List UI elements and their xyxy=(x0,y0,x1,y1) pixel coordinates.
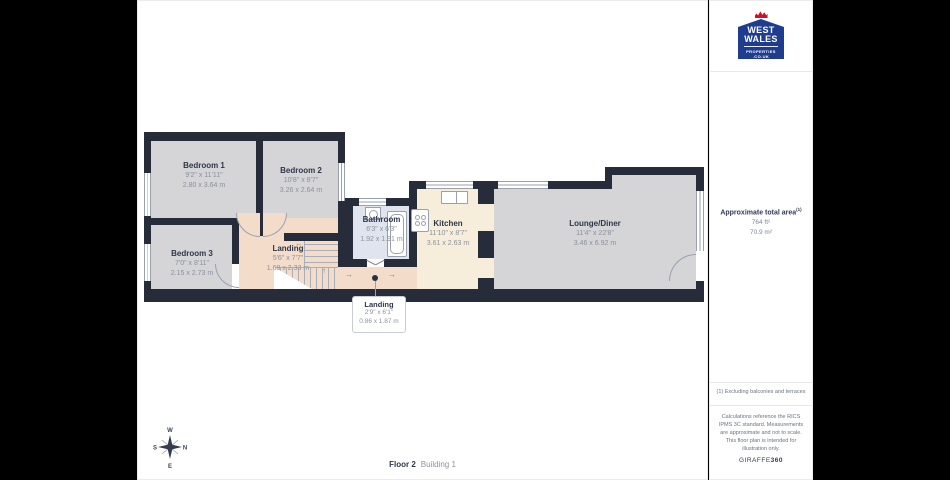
room-name: Lounge/Diner xyxy=(509,219,681,229)
kitchen-counter-icon xyxy=(441,191,468,204)
giraffe360-brand: GIRAFFE360 xyxy=(710,457,812,464)
room-floor-lounge-upper xyxy=(612,175,696,189)
window xyxy=(144,244,151,281)
bathroom-door-mark xyxy=(367,259,384,267)
room-label-bathroom: Bathroom 6'3" x 6'3" 1.92 x 1.91 m xyxy=(353,215,410,244)
room-dim-imperial: 10'8" x 8'7" xyxy=(263,176,339,186)
svg-text:S: S xyxy=(153,446,157,452)
room-name: Bedroom 3 xyxy=(151,249,233,259)
wall xyxy=(478,278,494,289)
dragon-icon xyxy=(755,11,768,18)
wall xyxy=(478,231,494,258)
callout-leader-line xyxy=(375,281,376,297)
plan-footer: Floor 2 Building 1 xyxy=(138,460,707,469)
brand-suffix: 360 xyxy=(771,457,783,464)
wall xyxy=(345,198,353,267)
total-area-ft: 764 ft² xyxy=(710,218,812,228)
room-floor-corridor xyxy=(345,267,417,289)
room-name: Bathroom xyxy=(353,215,410,225)
wall xyxy=(232,218,239,264)
svg-text:N: N xyxy=(183,446,187,452)
room-label-bedroom1: Bedroom 1 9'2" x 11'11" 2.80 x 3.64 m xyxy=(151,161,257,190)
total-area-block: Approximate total area(1) 764 ft² 70.9 m… xyxy=(710,205,812,238)
landing-callout: Landing 2'9" x 6'1" 0.86 x 1.87 m xyxy=(352,296,406,333)
room-dim-imperial: 11'10" x 8'7" xyxy=(417,229,479,239)
room-dim-metric: 1.92 x 1.91 m xyxy=(353,235,410,245)
wall xyxy=(144,218,238,225)
callout-name: Landing xyxy=(353,300,405,309)
room-dim-imperial: 6'3" x 6'3" xyxy=(353,225,410,235)
svg-text:W: W xyxy=(167,428,173,434)
brand-name: GIRAFFE xyxy=(739,457,771,464)
room-dim-imperial: 11'4" x 22'8" xyxy=(509,229,681,239)
building-label: Building 1 xyxy=(421,460,456,469)
logo-house-shape: WEST WALES PROPERTIES .CO.UK xyxy=(738,19,784,59)
room-label-bedroom3: Bedroom 3 7'0" x 8'11" 2.15 x 2.73 m xyxy=(151,249,233,278)
sidebar-divider xyxy=(710,405,812,406)
west-wales-logo: WEST WALES PROPERTIES .CO.UK xyxy=(710,11,812,59)
room-name: Kitchen xyxy=(417,219,479,229)
wall xyxy=(605,167,704,175)
window xyxy=(696,191,704,251)
corridor-arrow-right-1: → xyxy=(345,271,353,279)
logo-line2: WALES xyxy=(744,35,778,44)
logo-divider xyxy=(744,46,778,47)
window xyxy=(338,163,345,201)
stage: ← ↑ → → xyxy=(0,0,950,480)
window xyxy=(359,198,386,206)
room-name: Landing xyxy=(242,244,334,254)
room-dim-imperial: 7'0" x 8'11" xyxy=(151,259,233,269)
disclaimer-text: Calculations reference the RICS IPMS 3C … xyxy=(718,413,804,453)
room-label-landing: Landing 5'6" x 7'7" 1.68 x 2.33 m xyxy=(242,244,334,273)
room-dim-metric: 2.80 x 3.64 m xyxy=(151,181,257,191)
window xyxy=(426,181,473,189)
callout-dim-imperial: 2'9" x 6'1" xyxy=(353,309,405,318)
window xyxy=(498,181,548,189)
callout-dim-metric: 0.86 x 1.87 m xyxy=(353,318,405,327)
room-name: Bedroom 1 xyxy=(151,161,257,171)
area-footnote-marker: (1) xyxy=(796,207,802,212)
wall xyxy=(144,289,704,302)
room-dim-metric: 2.15 x 2.73 m xyxy=(151,269,233,279)
room-dim-imperial: 9'2" x 11'11" xyxy=(151,171,257,181)
sidebar: WEST WALES PROPERTIES .CO.UK Approximate… xyxy=(709,0,813,480)
room-name: Bedroom 2 xyxy=(263,166,339,176)
room-dim-metric: 1.68 x 2.33 m xyxy=(242,264,334,274)
room-label-lounge-diner: Lounge/Diner 11'4" x 22'8" 3.46 x 6.92 m xyxy=(509,219,681,248)
wall xyxy=(478,189,494,204)
wall xyxy=(144,132,345,141)
room-label-kitchen: Kitchen 11'10" x 8'7" 3.61 x 2.63 m xyxy=(417,219,479,248)
total-area-m: 70.9 m² xyxy=(710,228,812,238)
door-opening xyxy=(696,251,704,281)
room-label-bedroom2: Bedroom 2 10'8" x 8'7" 3.26 x 2.64 m xyxy=(263,166,339,195)
corridor-arrow-right-2: → xyxy=(388,271,396,279)
sidebar-divider xyxy=(710,71,812,72)
logo-line4: .CO.UK xyxy=(753,54,769,59)
room-dim-metric: 3.46 x 6.92 m xyxy=(509,239,681,249)
sidebar-divider xyxy=(710,382,812,383)
total-area-title: Approximate total area(1) xyxy=(710,205,812,218)
room-dim-imperial: 5'6" x 7'7" xyxy=(242,254,334,264)
room-dim-metric: 3.61 x 2.63 m xyxy=(417,239,479,249)
window xyxy=(144,173,151,216)
area-footnote: (1) Excluding balconies and terraces xyxy=(712,389,810,395)
floorplan-canvas: ← ↑ → → xyxy=(137,0,708,480)
wall xyxy=(284,233,338,241)
room-dim-metric: 3.26 x 2.64 m xyxy=(263,186,339,196)
floor-label: Floor 2 xyxy=(389,460,416,469)
